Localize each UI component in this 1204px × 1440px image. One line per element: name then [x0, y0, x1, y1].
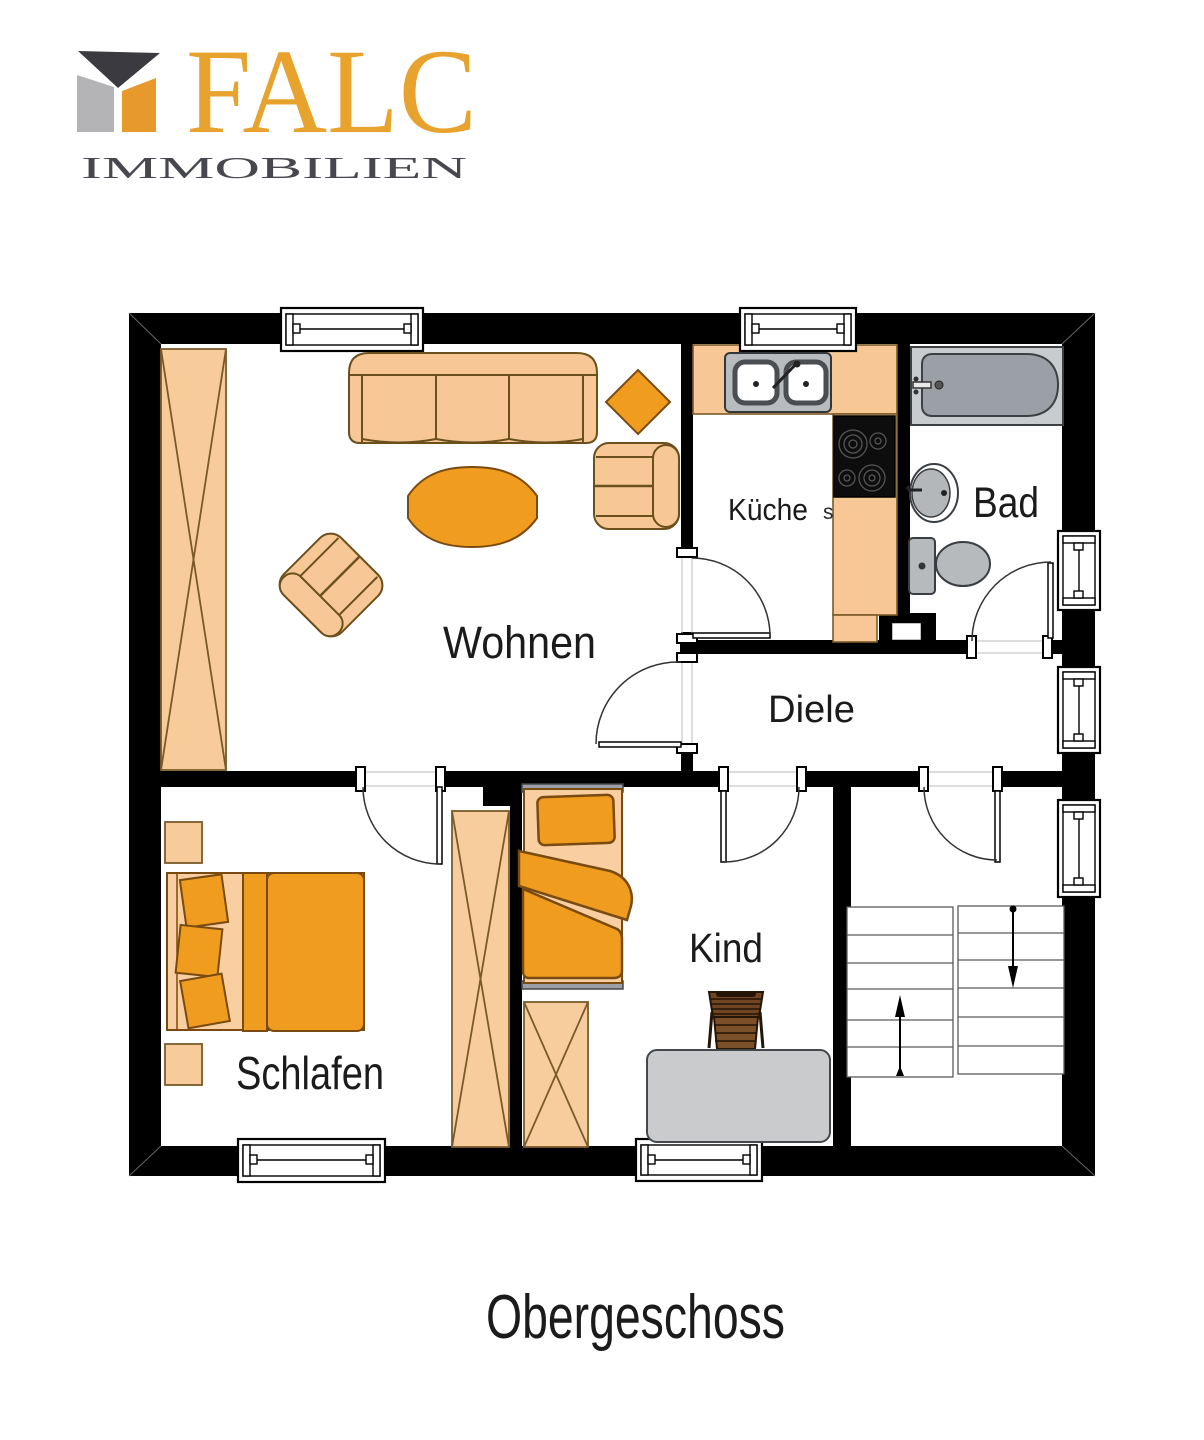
svg-text:s: s	[823, 501, 834, 524]
svg-text:IMMOBILIEN: IMMOBILIEN	[81, 150, 467, 185]
svg-text:Kind: Kind	[689, 925, 763, 971]
svg-text:Diele: Diele	[768, 689, 855, 731]
svg-text:Schlafen: Schlafen	[236, 1047, 384, 1099]
svg-text:FALC: FALC	[186, 25, 477, 159]
svg-text:Obergeschoss: Obergeschoss	[486, 1283, 785, 1352]
svg-text:Küche: Küche	[728, 492, 808, 527]
svg-text:Wohnen: Wohnen	[443, 617, 596, 668]
svg-text:Bad: Bad	[973, 479, 1039, 527]
